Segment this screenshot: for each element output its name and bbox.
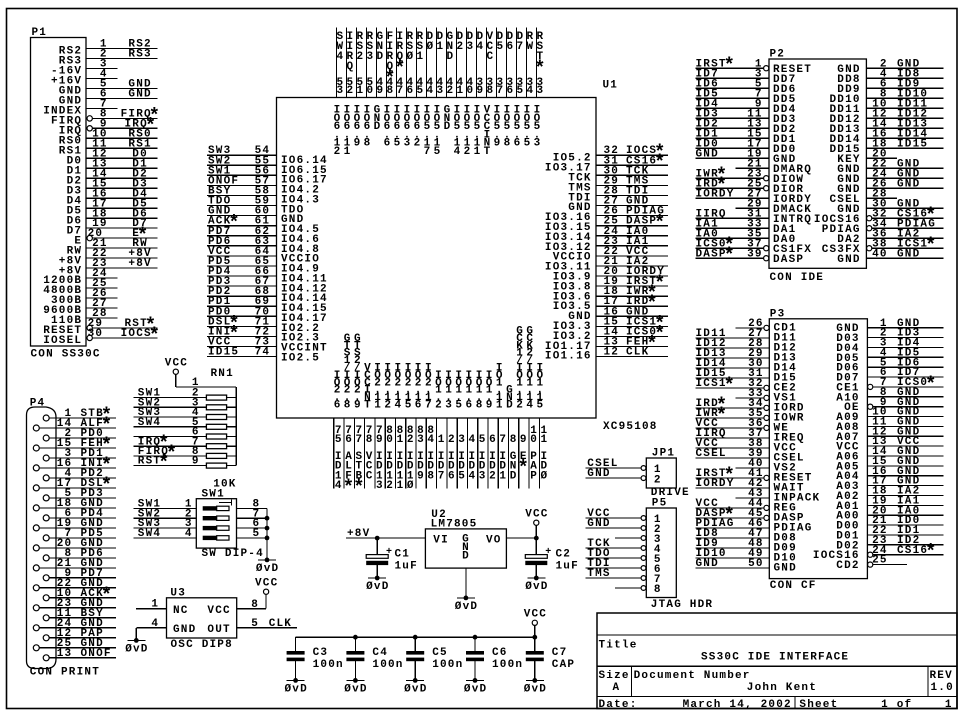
svg-text:25: 25 [872, 555, 888, 567]
svg-text:C: C [366, 470, 374, 482]
svg-text:1: 1 [456, 85, 464, 97]
svg-text:GND: GND [897, 178, 920, 190]
svg-text:3: 3 [436, 85, 444, 97]
svg-text:*: * [925, 373, 938, 395]
svg-text:U1: U1 [603, 80, 619, 92]
svg-text:50: 50 [748, 558, 764, 570]
svg-text:13: 13 [57, 648, 73, 660]
svg-text:3: 3 [445, 400, 453, 412]
svg-text:T: T [364, 400, 372, 412]
svg-text:ØvD: ØvD [125, 643, 148, 655]
svg-text:CON IDE: CON IDE [770, 272, 825, 284]
svg-text:*: * [723, 245, 736, 267]
svg-text:9: 9 [354, 400, 362, 412]
svg-text:*: * [353, 477, 366, 499]
svg-text:C7: C7 [552, 647, 568, 659]
svg-text:0: 0 [466, 85, 474, 97]
svg-text:5: 5 [516, 85, 524, 97]
svg-text:7: 7 [424, 146, 432, 158]
svg-text:3: 3 [366, 51, 374, 63]
svg-text:4: 4 [476, 41, 484, 53]
svg-text:VCC: VCC [524, 609, 547, 621]
svg-text:D: D [462, 551, 470, 563]
svg-text:1: 1 [151, 599, 159, 611]
svg-text:1: 1 [374, 400, 382, 412]
svg-text:March 14, 2002: March 14, 2002 [683, 699, 792, 711]
svg-text:8: 8 [386, 85, 394, 97]
svg-text:D: D [444, 121, 452, 133]
svg-text:1: 1 [499, 470, 507, 482]
svg-text:6: 6 [465, 400, 473, 412]
svg-text:IORDY: IORDY [696, 188, 735, 200]
svg-text:9: 9 [354, 138, 362, 150]
svg-text:*: * [654, 152, 667, 174]
svg-text:2: 2 [386, 480, 394, 492]
svg-text:6: 6 [406, 85, 414, 97]
svg-text:5: 5 [496, 41, 504, 53]
svg-text:Title: Title [599, 640, 638, 652]
svg-text:100n: 100n [313, 659, 344, 671]
svg-text:9: 9 [417, 470, 425, 482]
svg-text:ICS1: ICS1 [696, 378, 727, 390]
svg-text:ØvD: ØvD [256, 563, 279, 575]
svg-text:8: 8 [344, 400, 352, 412]
svg-text:6: 6 [384, 138, 392, 150]
svg-text:2: 2 [446, 85, 454, 97]
svg-text:ØvD: ØvD [455, 601, 478, 613]
svg-text:4: 4 [526, 85, 534, 97]
svg-text:SW4: SW4 [138, 417, 161, 429]
svg-text:D: D [506, 400, 514, 412]
svg-text:39: 39 [747, 248, 763, 260]
svg-text:1: 1 [436, 41, 444, 53]
svg-text:6: 6 [415, 400, 423, 412]
svg-text:9: 9 [520, 434, 528, 446]
svg-text:CON CF: CON CF [770, 580, 817, 592]
svg-text:5: 5 [405, 400, 413, 412]
svg-text:ØvD: ØvD [404, 683, 427, 695]
svg-text:8: 8 [251, 599, 259, 611]
svg-text:*: * [925, 235, 938, 257]
svg-text:CS16: CS16 [897, 545, 928, 557]
svg-text:2: 2 [435, 400, 443, 412]
svg-text:1: 1 [416, 51, 424, 63]
svg-text:OUT: OUT [207, 624, 230, 636]
svg-text:CON PRINT: CON PRINT [30, 666, 100, 678]
svg-text:1 of: 1 of [881, 699, 912, 711]
svg-text:1: 1 [344, 146, 352, 158]
svg-text:GND: GND [173, 624, 196, 636]
svg-text:4: 4 [335, 480, 343, 492]
svg-text:7: 7 [396, 85, 404, 97]
svg-text:4: 4 [185, 528, 193, 540]
svg-text:4: 4 [468, 434, 476, 446]
svg-text:T: T [484, 146, 492, 158]
svg-text:8: 8 [486, 85, 494, 97]
svg-text:John Kent: John Kent [747, 682, 817, 694]
svg-text:SW4: SW4 [138, 528, 161, 540]
svg-text:Ø: Ø [426, 41, 434, 53]
svg-text:ØvD: ØvD [366, 581, 389, 593]
svg-text:4: 4 [394, 400, 402, 412]
svg-text:D: D [446, 51, 454, 63]
svg-text:VCC: VCC [255, 578, 278, 590]
svg-text:2: 2 [384, 400, 392, 412]
svg-text:D: D [374, 121, 382, 133]
svg-text:*: * [149, 324, 162, 346]
svg-text:GND: GND [696, 558, 719, 570]
svg-text:Q: Q [346, 61, 354, 73]
svg-text:6: 6 [334, 400, 342, 412]
svg-text:P1: P1 [32, 27, 48, 39]
svg-text:VCC: VCC [165, 358, 188, 370]
svg-text:Sheet: Sheet [799, 699, 838, 711]
svg-text:P: P [530, 470, 538, 482]
svg-text:IO1.16: IO1.16 [545, 351, 592, 363]
svg-text:3: 3 [336, 85, 344, 97]
svg-text:CLK: CLK [269, 618, 292, 630]
svg-text:4: 4 [151, 618, 159, 630]
svg-text:1: 1 [356, 85, 364, 97]
svg-text:ØvD: ØvD [524, 683, 547, 695]
svg-text:3: 3 [404, 138, 412, 150]
svg-text:ØvD: ØvD [525, 581, 548, 593]
svg-text:5: 5 [251, 618, 259, 630]
svg-text:ID15: ID15 [897, 138, 928, 150]
svg-text:5: 5 [455, 400, 463, 412]
svg-text:2: 2 [464, 146, 472, 158]
svg-text:9: 9 [476, 85, 484, 97]
svg-text:*: * [925, 541, 938, 563]
svg-text:GND: GND [587, 468, 610, 480]
svg-text:9: 9 [376, 434, 384, 446]
svg-text:C4: C4 [372, 647, 388, 659]
svg-text:7: 7 [355, 434, 363, 446]
svg-text:CON SS30C: CON SS30C [31, 349, 101, 361]
svg-text:DASP: DASP [773, 254, 804, 266]
svg-text:SW DIP-4: SW DIP-4 [202, 548, 264, 560]
svg-text:1: 1 [397, 434, 405, 446]
svg-text:GND: GND [696, 148, 719, 160]
svg-text:JTAG HDR: JTAG HDR [651, 599, 713, 611]
svg-text:7: 7 [496, 85, 504, 97]
svg-text:GND: GND [837, 254, 860, 266]
svg-text:ØvD: ØvD [344, 683, 367, 695]
svg-text:3: 3 [376, 480, 384, 492]
svg-text:2: 2 [489, 470, 497, 482]
svg-text:5: 5 [458, 470, 466, 482]
svg-text:1: 1 [496, 400, 504, 412]
svg-text:5: 5 [394, 138, 402, 150]
svg-text:VI: VI [433, 535, 449, 547]
svg-text:CAP: CAP [552, 659, 575, 671]
svg-text:GND: GND [128, 89, 151, 101]
svg-text:D: D [510, 470, 518, 482]
svg-text:GND: GND [897, 248, 920, 260]
svg-text:8: 8 [504, 138, 512, 150]
svg-text:GND: GND [587, 518, 610, 530]
svg-text:3: 3 [417, 434, 425, 446]
svg-text:RS3: RS3 [128, 49, 151, 61]
svg-text:Ø: Ø [406, 51, 414, 63]
svg-text:4: 4 [426, 85, 434, 97]
svg-text:C1: C1 [395, 549, 411, 561]
svg-text:2: 2 [456, 41, 464, 53]
svg-text:100n: 100n [432, 659, 463, 671]
svg-text:6: 6 [345, 434, 353, 446]
svg-text:VO: VO [486, 535, 502, 547]
svg-text:ID15: ID15 [208, 347, 239, 359]
svg-text:6: 6 [506, 41, 514, 53]
svg-text:5: 5 [434, 146, 442, 158]
svg-text:Document Number: Document Number [634, 670, 751, 682]
svg-text:0: 0 [386, 434, 394, 446]
svg-text:2: 2 [448, 434, 456, 446]
svg-text:DASP: DASP [696, 248, 727, 260]
svg-text:4: 4 [427, 434, 435, 446]
svg-text:Ø: Ø [407, 480, 415, 492]
svg-text:C2: C2 [556, 549, 572, 561]
svg-text:D: D [376, 51, 384, 63]
svg-text:5: 5 [479, 434, 487, 446]
svg-text:CSEL: CSEL [696, 448, 727, 460]
svg-text:IO2.5: IO2.5 [281, 352, 320, 364]
svg-text:4: 4 [454, 146, 462, 158]
svg-text:REV: REV [930, 670, 953, 682]
svg-text:*: * [158, 452, 171, 474]
svg-text:6: 6 [506, 85, 514, 97]
svg-text:1uF: 1uF [556, 561, 579, 573]
svg-text:Ø: Ø [540, 470, 548, 482]
svg-text:Date:: Date: [599, 699, 638, 711]
svg-text:2: 2 [654, 474, 662, 486]
svg-text:8: 8 [364, 138, 372, 150]
svg-text:*: * [723, 374, 736, 396]
svg-text:P3: P3 [770, 308, 786, 320]
svg-text:2: 2 [516, 400, 524, 412]
svg-text:7: 7 [438, 470, 446, 482]
svg-text:7: 7 [516, 41, 524, 53]
svg-text:A: A [613, 682, 621, 694]
svg-text:SS30C IDE INTERFACE: SS30C IDE INTERFACE [701, 652, 849, 664]
svg-text:CD2: CD2 [836, 560, 859, 572]
svg-text:C: C [486, 51, 494, 63]
svg-text:OSC DIP8: OSC DIP8 [171, 639, 233, 651]
svg-text:5: 5 [524, 138, 532, 150]
svg-text:5: 5 [335, 434, 343, 446]
svg-text:2: 2 [407, 434, 415, 446]
svg-text:*: * [517, 457, 530, 479]
svg-text:VCC: VCC [207, 605, 230, 617]
svg-text:ØvD: ØvD [285, 683, 308, 695]
svg-text:8: 8 [476, 400, 484, 412]
svg-text:*: * [654, 212, 667, 234]
svg-text:1: 1 [945, 699, 953, 711]
svg-text:2: 2 [346, 85, 354, 97]
svg-text:NC: NC [173, 605, 189, 617]
svg-text:1: 1 [474, 146, 482, 158]
svg-text:5: 5 [416, 85, 424, 97]
svg-text:IOSEL: IOSEL [43, 335, 82, 347]
svg-text:3: 3 [466, 41, 474, 53]
svg-text:Size: Size [599, 670, 630, 682]
svg-text:3: 3 [536, 85, 544, 97]
svg-text:8: 8 [366, 434, 374, 446]
svg-text:7: 7 [425, 400, 433, 412]
svg-text:ONOF: ONOF [81, 648, 112, 660]
svg-text:100n: 100n [372, 659, 403, 671]
svg-text:4: 4 [526, 400, 534, 412]
svg-text:3: 3 [458, 434, 466, 446]
svg-text:1: 1 [397, 480, 405, 492]
svg-text:CLK: CLK [626, 347, 649, 359]
svg-text:1.0: 1.0 [931, 682, 954, 694]
svg-text:4: 4 [468, 470, 476, 482]
svg-text:0: 0 [530, 434, 538, 446]
svg-text:2: 2 [334, 146, 342, 158]
svg-text:VCC: VCC [525, 509, 548, 521]
svg-text:2: 2 [414, 138, 422, 150]
svg-text:8: 8 [427, 470, 435, 482]
svg-text:9: 9 [486, 400, 494, 412]
svg-text:4: 4 [336, 51, 344, 63]
svg-text:9: 9 [494, 138, 502, 150]
svg-text:1uF: 1uF [395, 561, 418, 573]
svg-text:3: 3 [534, 138, 542, 150]
svg-text:6: 6 [448, 470, 456, 482]
svg-text:8: 8 [654, 584, 662, 596]
svg-text:74: 74 [255, 347, 271, 359]
svg-text:+: + [386, 547, 393, 558]
svg-text:C5: C5 [432, 647, 448, 659]
svg-text:P4: P4 [30, 397, 46, 409]
svg-text:30: 30 [88, 328, 104, 340]
svg-text:5: 5 [536, 400, 544, 412]
svg-text:RN1: RN1 [211, 368, 234, 380]
svg-text:IORDY: IORDY [696, 478, 735, 490]
svg-text:*: * [723, 55, 736, 77]
svg-text:IOCS: IOCS [121, 328, 152, 340]
svg-text:P2: P2 [770, 49, 786, 61]
svg-text:GND: GND [774, 563, 797, 575]
svg-text:C3: C3 [313, 647, 329, 659]
svg-text:ØvD: ØvD [464, 683, 487, 695]
svg-text:5: 5 [253, 528, 261, 540]
svg-text:+: + [545, 547, 552, 558]
svg-text:6: 6 [514, 138, 522, 150]
svg-text:XC95108: XC95108 [603, 421, 658, 433]
svg-text:8: 8 [510, 434, 518, 446]
svg-text:12: 12 [604, 347, 620, 359]
svg-text:100n: 100n [492, 659, 523, 671]
svg-text:6: 6 [489, 434, 497, 446]
svg-text:TMS: TMS [587, 568, 610, 580]
svg-text:+8V: +8V [128, 258, 151, 270]
svg-text:1: 1 [540, 434, 548, 446]
svg-text:9: 9 [192, 456, 200, 468]
svg-text:1: 1 [438, 434, 446, 446]
svg-text:2: 2 [356, 51, 364, 63]
svg-text:C6: C6 [492, 647, 508, 659]
svg-text:W: W [526, 41, 534, 53]
svg-text:7: 7 [499, 434, 507, 446]
svg-text:3: 3 [479, 470, 487, 482]
svg-text:0: 0 [366, 85, 374, 97]
svg-text:40: 40 [872, 248, 888, 260]
